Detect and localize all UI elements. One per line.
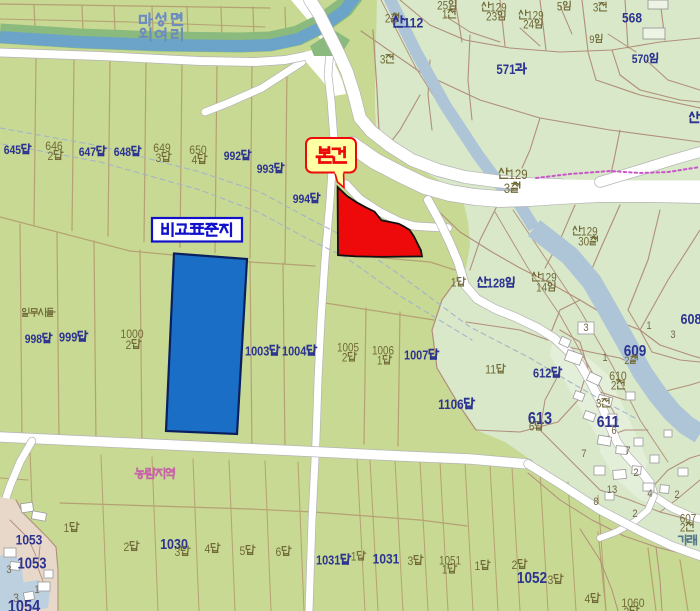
svg-text:3: 3 bbox=[156, 151, 162, 165]
svg-text:3: 3 bbox=[583, 322, 588, 334]
svg-text:1003: 1003 bbox=[245, 344, 269, 359]
svg-text:3: 3 bbox=[380, 55, 386, 67]
svg-text:645: 645 bbox=[4, 143, 22, 157]
svg-text:1031: 1031 bbox=[373, 551, 400, 567]
svg-text:1031: 1031 bbox=[316, 553, 340, 568]
svg-text:2: 2 bbox=[126, 338, 132, 352]
svg-text:1: 1 bbox=[475, 559, 481, 573]
svg-text:1: 1 bbox=[451, 278, 457, 290]
svg-text:2: 2 bbox=[624, 605, 630, 611]
svg-text:568: 568 bbox=[622, 10, 642, 26]
svg-text:999: 999 bbox=[59, 330, 77, 345]
svg-text:9: 9 bbox=[589, 34, 594, 46]
svg-text:648: 648 bbox=[114, 145, 132, 159]
svg-text:4: 4 bbox=[205, 542, 211, 556]
svg-text:1053: 1053 bbox=[18, 556, 47, 573]
svg-text:14: 14 bbox=[536, 283, 547, 295]
svg-text:994: 994 bbox=[293, 192, 311, 206]
svg-text:7: 7 bbox=[625, 445, 630, 457]
svg-text:3: 3 bbox=[548, 573, 554, 587]
svg-text:6: 6 bbox=[611, 425, 616, 437]
svg-text:3: 3 bbox=[504, 181, 510, 196]
svg-text:8: 8 bbox=[593, 496, 598, 508]
svg-text:1: 1 bbox=[442, 565, 448, 577]
svg-text:128: 128 bbox=[487, 276, 505, 291]
svg-text:6: 6 bbox=[529, 422, 535, 434]
svg-text:2: 2 bbox=[680, 523, 686, 535]
svg-text:4: 4 bbox=[192, 153, 198, 167]
svg-text:998: 998 bbox=[25, 332, 43, 346]
svg-text:3: 3 bbox=[593, 3, 599, 15]
svg-text:3: 3 bbox=[408, 554, 414, 568]
svg-text:1004: 1004 bbox=[282, 344, 307, 359]
svg-text:2: 2 bbox=[624, 355, 629, 367]
svg-text:570: 570 bbox=[632, 52, 650, 66]
svg-text:2: 2 bbox=[124, 540, 130, 554]
svg-text:1: 1 bbox=[602, 352, 607, 364]
svg-text:1: 1 bbox=[34, 584, 39, 596]
svg-text:3: 3 bbox=[670, 329, 675, 341]
svg-text:1007: 1007 bbox=[404, 348, 428, 363]
svg-text:1053: 1053 bbox=[16, 532, 43, 548]
svg-text:992: 992 bbox=[224, 149, 242, 163]
svg-text:129: 129 bbox=[508, 167, 527, 182]
svg-text:30: 30 bbox=[578, 237, 589, 249]
svg-text:608: 608 bbox=[681, 312, 700, 328]
svg-text:2: 2 bbox=[385, 14, 391, 26]
svg-text:2: 2 bbox=[674, 489, 679, 501]
svg-text:2: 2 bbox=[632, 508, 637, 520]
svg-text:5: 5 bbox=[240, 544, 246, 558]
svg-text:4: 4 bbox=[647, 488, 652, 500]
svg-text:1: 1 bbox=[351, 552, 357, 564]
svg-text:7: 7 bbox=[581, 448, 586, 460]
svg-text:571: 571 bbox=[496, 62, 516, 77]
svg-text:2: 2 bbox=[342, 353, 348, 365]
svg-text:1: 1 bbox=[64, 521, 70, 535]
svg-text:993: 993 bbox=[257, 162, 275, 176]
svg-text:3: 3 bbox=[596, 399, 602, 411]
svg-text:1106: 1106 bbox=[438, 397, 464, 412]
svg-text:5: 5 bbox=[557, 2, 563, 14]
svg-text:1: 1 bbox=[646, 320, 651, 332]
svg-text:112: 112 bbox=[403, 15, 423, 31]
svg-text:23: 23 bbox=[486, 12, 497, 24]
svg-text:2: 2 bbox=[633, 467, 638, 479]
svg-text:3: 3 bbox=[175, 545, 181, 559]
svg-text:6: 6 bbox=[276, 545, 282, 559]
svg-text:4: 4 bbox=[585, 592, 591, 606]
svg-text:647: 647 bbox=[79, 145, 97, 159]
svg-text:1: 1 bbox=[442, 10, 448, 22]
svg-text:2: 2 bbox=[48, 149, 54, 163]
svg-text:1000: 1000 bbox=[120, 327, 143, 341]
svg-text:3: 3 bbox=[13, 591, 19, 605]
svg-text:2: 2 bbox=[611, 381, 617, 393]
svg-text:13: 13 bbox=[607, 484, 617, 496]
svg-text:24: 24 bbox=[523, 20, 534, 32]
svg-text:11: 11 bbox=[485, 365, 496, 377]
svg-text:1052: 1052 bbox=[517, 570, 547, 587]
svg-text:612: 612 bbox=[533, 366, 551, 381]
svg-text:1: 1 bbox=[377, 356, 383, 368]
svg-text:3: 3 bbox=[6, 564, 11, 576]
